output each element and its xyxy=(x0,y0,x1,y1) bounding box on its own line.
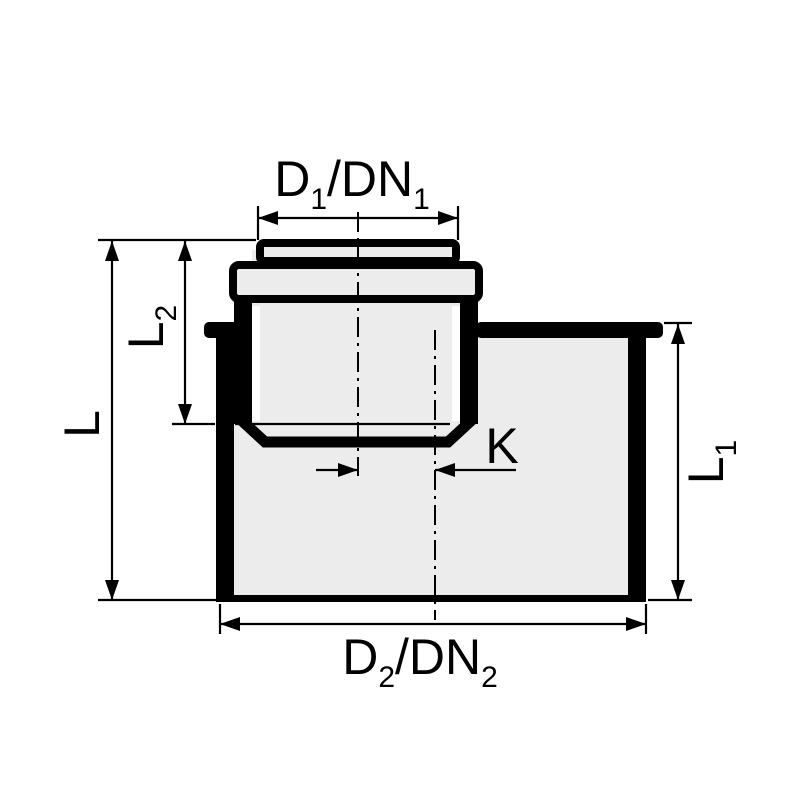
fitting-top-socket xyxy=(233,243,479,442)
d1-arrow-left xyxy=(258,211,278,225)
d1-arrow-right xyxy=(438,211,458,225)
socket-wall-left xyxy=(234,299,252,424)
dimension-l1: L1 xyxy=(648,323,743,600)
pipe-fitting-diagram: D1/DN1 L L2 L1 xyxy=(0,0,800,800)
label-l: L xyxy=(54,410,110,438)
d2-arrow-left xyxy=(220,617,240,631)
socket-wall-right xyxy=(460,299,478,424)
l2-arrow-bottom xyxy=(178,404,192,424)
body-bottom-edge xyxy=(216,595,646,602)
l1-arrow-bottom xyxy=(671,580,685,600)
label-d2-dn2: D2/DN2 xyxy=(342,629,498,694)
body-right-wall xyxy=(628,330,646,602)
body-left-wall xyxy=(216,330,234,602)
l2-arrow-top xyxy=(178,241,192,261)
dimension-d2: D2/DN2 xyxy=(220,604,646,694)
label-l2: L2 xyxy=(118,305,183,350)
d2-arrow-right xyxy=(626,617,646,631)
label-d1-dn1: D1/DN1 xyxy=(274,151,430,216)
l1-arrow-top xyxy=(671,324,685,344)
label-l1: L1 xyxy=(678,440,743,485)
socket-inner-gap-right xyxy=(452,306,460,421)
label-k: K xyxy=(485,418,518,474)
l-arrow-bottom xyxy=(105,580,119,600)
dimension-l2: L2 xyxy=(118,241,192,424)
l-arrow-top xyxy=(105,241,119,261)
socket-inner-gap-left xyxy=(252,306,260,421)
technical-drawing-canvas: D1/DN1 L L2 L1 xyxy=(0,0,800,800)
socket-collar xyxy=(233,265,479,299)
